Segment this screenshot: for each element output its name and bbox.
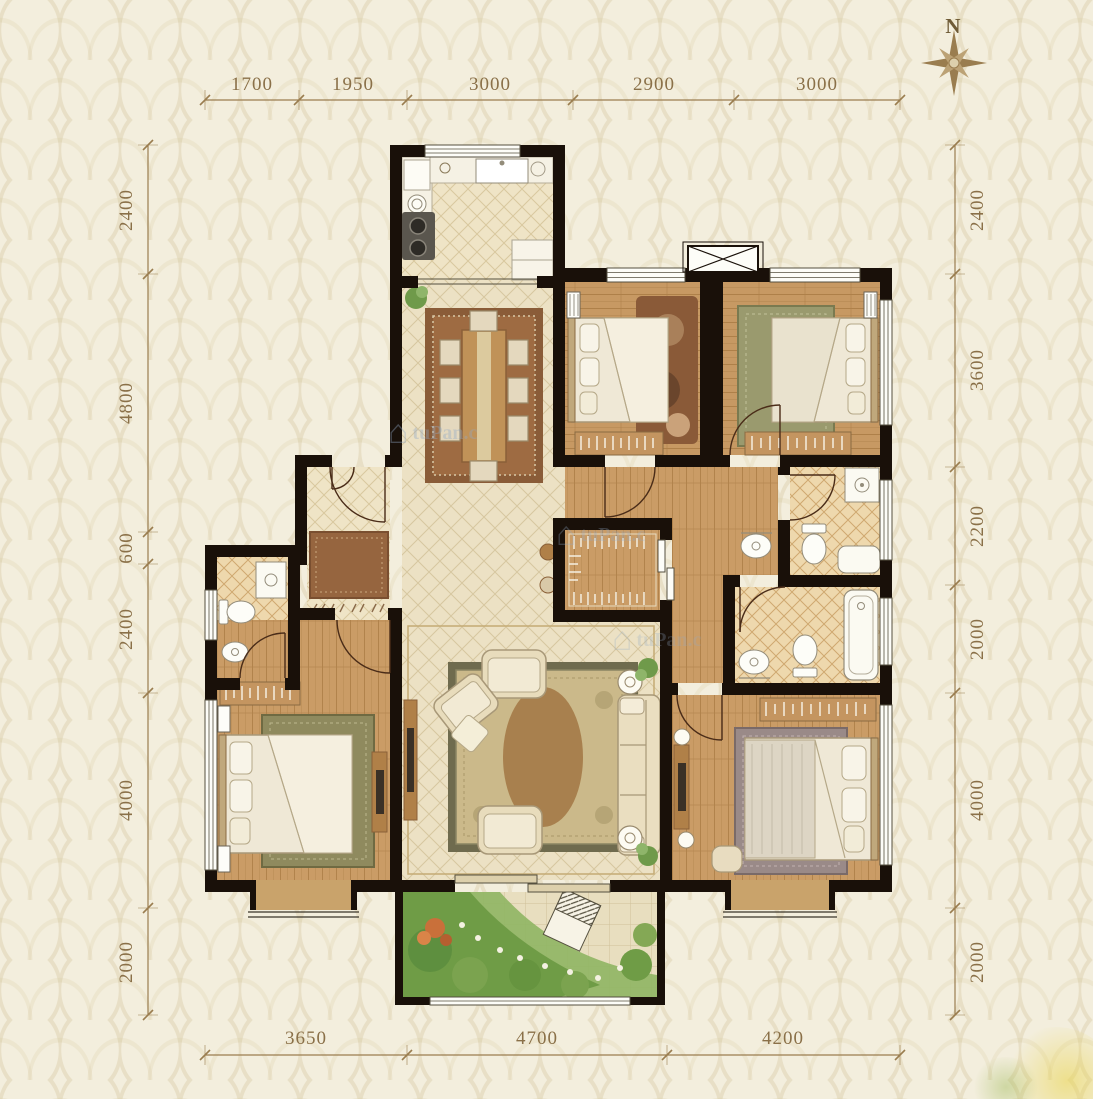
dining-set xyxy=(405,286,543,483)
duct-shaft xyxy=(683,242,763,272)
dim-top-2: 1950 xyxy=(318,74,388,96)
balcony-window xyxy=(430,997,630,1005)
tv xyxy=(678,763,686,811)
bed xyxy=(772,318,878,422)
dim-left-4: 2400 xyxy=(116,594,138,664)
lamp xyxy=(678,832,694,848)
window xyxy=(880,480,892,560)
tub-small xyxy=(838,546,880,573)
radiator xyxy=(218,706,230,732)
toilet xyxy=(802,524,826,564)
toilet xyxy=(793,635,817,677)
floor-plan-page: 1700 1950 3000 2900 3000 3650 4700 4200 … xyxy=(0,0,1093,1099)
dim-top-3: 3000 xyxy=(455,74,525,96)
wardrobe xyxy=(575,432,663,455)
window xyxy=(205,700,217,870)
toilet xyxy=(219,600,255,624)
compass-north-label: N xyxy=(938,14,968,39)
dim-left-5: 4000 xyxy=(116,765,138,835)
shower xyxy=(256,562,286,598)
dim-right-5: 4000 xyxy=(967,765,989,835)
window xyxy=(770,268,860,282)
window xyxy=(205,590,217,640)
dim-top-4: 2900 xyxy=(619,74,689,96)
dim-top-1: 1700 xyxy=(217,74,287,96)
window xyxy=(880,300,892,425)
bed xyxy=(568,318,668,422)
sliding-door-cloak xyxy=(658,540,674,600)
dim-right-6: 2000 xyxy=(967,927,989,997)
bed xyxy=(745,738,878,860)
dim-left-3: 600 xyxy=(116,513,138,583)
bay-window-right xyxy=(725,880,835,910)
compass-icon xyxy=(921,30,987,96)
dim-bottom-2: 4700 xyxy=(502,1028,572,1050)
entry-mat xyxy=(310,532,388,598)
dim-right-4: 2000 xyxy=(967,604,989,674)
window xyxy=(880,705,892,865)
dim-left-2: 4800 xyxy=(116,368,138,438)
bed xyxy=(219,735,352,853)
cloakroom-floor xyxy=(565,530,660,610)
wardrobe xyxy=(760,698,876,721)
lamp xyxy=(674,729,690,745)
dim-bottom-1: 3650 xyxy=(271,1028,341,1050)
window xyxy=(607,268,685,282)
bay-window-left xyxy=(250,880,357,910)
dim-left-6: 2000 xyxy=(116,927,138,997)
radiator xyxy=(218,846,230,872)
tv xyxy=(407,728,414,792)
dim-right-3: 2200 xyxy=(967,491,989,561)
window xyxy=(425,145,520,157)
dim-bottom-3: 4200 xyxy=(748,1028,818,1050)
dim-right-2: 3600 xyxy=(967,335,989,405)
dim-right-1: 2400 xyxy=(967,175,989,245)
window xyxy=(880,598,892,665)
ottoman xyxy=(712,846,742,872)
dim-left-1: 2400 xyxy=(116,175,138,245)
floor-plan-drawing xyxy=(0,0,1093,1099)
dim-top-5: 3000 xyxy=(782,74,852,96)
